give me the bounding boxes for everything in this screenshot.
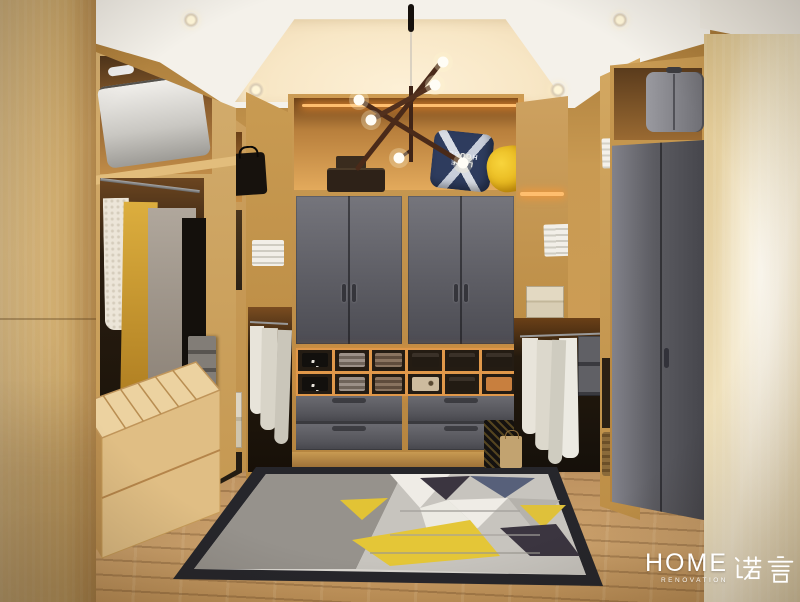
panel-seam xyxy=(0,318,96,320)
cubby-cell xyxy=(372,350,406,371)
watermark-sub: RENOVATION xyxy=(661,577,728,584)
cubby-cell xyxy=(445,374,479,395)
sputnik-chandelier xyxy=(265,0,485,190)
downlight-icon xyxy=(612,12,628,28)
cubby-cell xyxy=(335,350,369,371)
drawer-handle xyxy=(444,398,478,403)
cubby-grid xyxy=(296,348,518,396)
door-handle xyxy=(342,284,346,302)
folded-clothes xyxy=(339,377,365,391)
cubby-cell xyxy=(482,374,516,395)
brand-watermark: HOME RENOVATION xyxy=(645,550,797,598)
folded-clothes xyxy=(339,353,365,367)
storage-box xyxy=(449,353,475,367)
closet-room-photo: LAKE HOUSE xyxy=(0,0,800,602)
drawer xyxy=(296,424,402,449)
drawer xyxy=(296,396,402,421)
suitcase-seam xyxy=(673,74,675,130)
led-strip xyxy=(520,192,564,196)
drawer-handle xyxy=(332,426,366,431)
folded-clothes xyxy=(375,353,401,367)
cubby-cell xyxy=(408,374,442,395)
storage-box xyxy=(412,377,438,391)
drawer xyxy=(408,396,514,421)
folded-clothes xyxy=(375,377,401,391)
downlight-icon xyxy=(183,12,199,28)
right-tall-wardrobe xyxy=(610,56,706,530)
cubby-cell xyxy=(298,350,332,371)
drawer-handle xyxy=(444,426,478,431)
cabinet-doors-right xyxy=(408,196,514,344)
shoes xyxy=(302,353,328,367)
door-handle xyxy=(464,284,468,302)
door-gap xyxy=(660,140,662,520)
front-right-wood-panel xyxy=(704,34,800,602)
suitcase-handle xyxy=(666,67,682,73)
cubby-cell xyxy=(335,374,369,395)
cubby-cell xyxy=(298,374,332,395)
watermark-brand: HOME xyxy=(645,550,728,576)
shoes xyxy=(302,377,328,391)
bag-handle xyxy=(238,145,259,158)
cabinet-doors-left xyxy=(296,196,402,344)
drawer-bank-left xyxy=(296,396,402,450)
door-handle xyxy=(664,348,669,368)
wardrobe-doors xyxy=(612,140,704,520)
door-gap xyxy=(460,196,462,344)
front-left-wood-panel xyxy=(0,0,96,602)
right-corner-hanging-recess xyxy=(514,318,606,472)
folded-towels xyxy=(252,240,284,266)
shopping-bag-kraft xyxy=(500,436,522,468)
watermark-cn-glyphs xyxy=(734,552,796,586)
door-handle xyxy=(454,284,458,302)
storage-boxes xyxy=(526,286,564,318)
cubby-cell xyxy=(372,374,406,395)
cubby-cell xyxy=(445,350,479,371)
drawer-handle xyxy=(332,398,366,403)
door-gap xyxy=(348,196,350,344)
watermark-latin: HOME RENOVATION xyxy=(645,550,728,584)
downlight-icon xyxy=(550,82,566,98)
storage-box xyxy=(412,353,438,367)
bag-handle xyxy=(505,430,519,439)
cubby-cell xyxy=(482,350,516,371)
folded-clothes xyxy=(486,377,512,391)
gray-suitcase xyxy=(646,72,704,132)
storage-box xyxy=(486,353,512,367)
right-shelf-column xyxy=(516,96,568,320)
door-handle xyxy=(352,284,356,302)
storage-box xyxy=(449,377,475,391)
cubby-cell xyxy=(408,350,442,371)
